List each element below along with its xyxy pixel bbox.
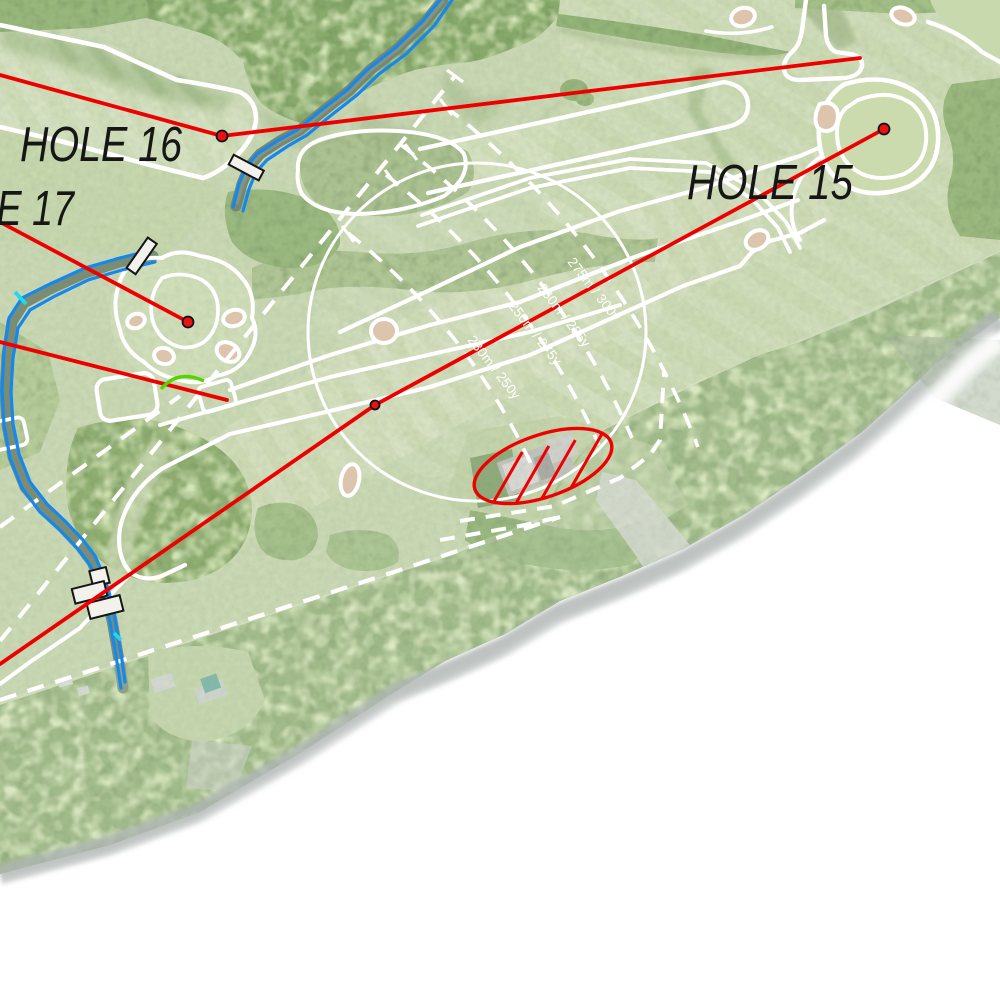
svg-text:HOLE 17: HOLE 17 bbox=[0, 181, 75, 236]
svg-text:HOLE 16: HOLE 16 bbox=[20, 117, 182, 172]
svg-text:HOLE 15: HOLE 15 bbox=[687, 155, 853, 210]
